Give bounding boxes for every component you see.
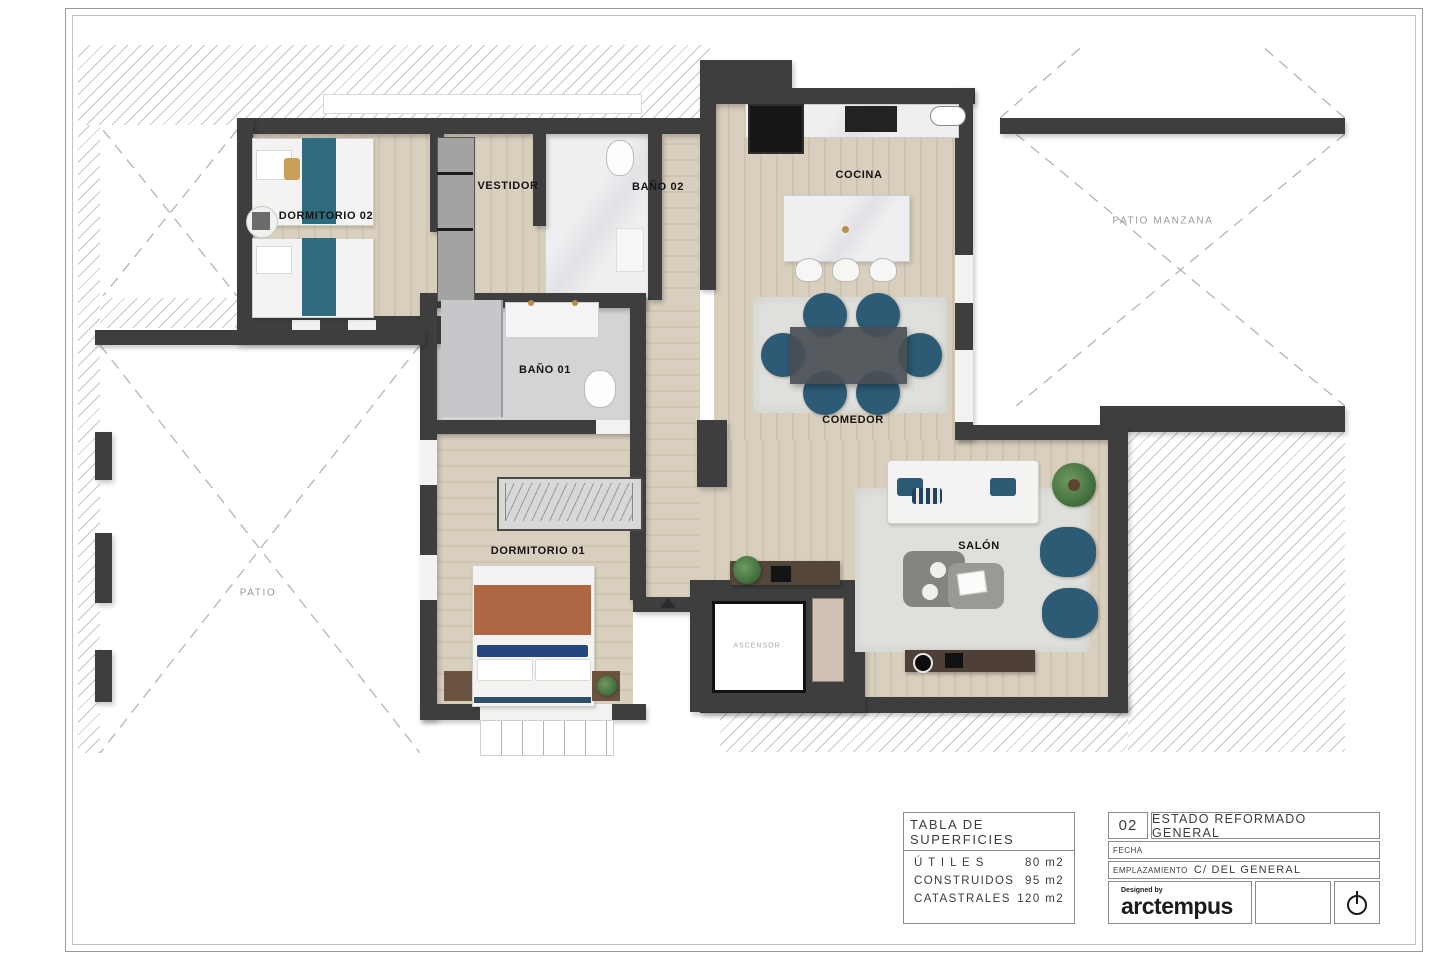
hall-console-frame	[770, 565, 792, 583]
wall-salon-top-right	[955, 425, 1115, 440]
island-faucet	[842, 226, 849, 233]
window-comedor-a	[955, 255, 973, 303]
hatch-bottom	[720, 708, 1130, 752]
bed-dorm02-bottom-pillow	[256, 246, 292, 274]
patio-manzana-x-lines	[1016, 134, 1345, 406]
sheet-number: 02	[1119, 817, 1138, 834]
room-label-ascensor: ASCENSOR	[733, 643, 780, 650]
surfaces-row-catastrales: CATASTRALES 120 m2	[904, 887, 1074, 905]
plant-salon-pot	[1068, 479, 1080, 491]
armchair-1	[1040, 527, 1096, 577]
island-stool-3	[869, 258, 897, 282]
entrance-arrow-icon	[660, 598, 676, 608]
wall-patio-top	[95, 330, 425, 345]
wall-stub-left-3	[95, 650, 112, 702]
room-label-cocina: COCINA	[836, 169, 883, 181]
wall-salon-right	[1108, 425, 1128, 712]
surfaces-row-construidos-value: 95 m2	[1025, 875, 1064, 887]
wall-kitchen-left	[700, 100, 716, 290]
island-stool-1	[795, 258, 823, 282]
kitchen-cooktop	[845, 106, 897, 132]
wall-midwing-left	[420, 293, 437, 720]
wall-kitchen-top	[790, 88, 975, 104]
bed-dorm01-pillow-right	[535, 659, 591, 681]
wall-kitchen-corner-block	[700, 60, 792, 104]
surfaces-row-utiles-label: Ú T I L E S	[914, 857, 985, 869]
closet-vestidor	[437, 137, 475, 302]
arctempus-logo: arctempus	[1121, 895, 1233, 918]
room-label-bano01: BAÑO 01	[519, 364, 571, 376]
patio-pocket-x-lines	[103, 130, 237, 296]
emplazamiento-label: EMPLAZAMIENTO	[1113, 866, 1188, 875]
room-label-patio-manzana: PATIO MANZANA	[1113, 216, 1214, 227]
room-label-patio: PATIO	[240, 588, 277, 599]
kitchen-oven-column	[748, 104, 804, 154]
wall-patio-manzana-top	[1000, 118, 1345, 134]
blank-cell	[1255, 881, 1331, 924]
plant-dorm01	[597, 676, 617, 696]
nightstand-dorm01-left	[444, 671, 472, 701]
hatch-right-block	[1128, 432, 1345, 752]
island-stool-2	[832, 258, 860, 282]
closet-shelf-line-1	[437, 172, 473, 175]
tv-console-speaker	[913, 653, 933, 673]
wall-top-left-wing	[237, 118, 710, 134]
patio-x-lines	[100, 345, 420, 753]
surfaces-table-title: TABLA DE SUPERFICIES	[904, 813, 1074, 851]
surfaces-row-utiles: Ú T I L E S 80 m2	[904, 851, 1074, 869]
wall-hall-pillar	[697, 420, 727, 487]
floor-corridor	[645, 298, 700, 598]
window-dorm01-left-a	[420, 440, 437, 485]
skylight-band	[323, 94, 642, 114]
surfaces-table: TABLA DE SUPERFICIES Ú T I L E S 80 m2 C…	[903, 812, 1075, 924]
window-dorm01-left-b	[420, 555, 437, 600]
sheet-number-cell: 02	[1108, 812, 1148, 839]
balcony-glazing	[480, 720, 614, 756]
wall-patio-manzana-bottom	[1100, 406, 1345, 432]
bed-dorm01-pillow-blue	[477, 645, 588, 657]
patio-manzana-upper-x-lines	[1000, 48, 1345, 118]
fecha-label: FECHA	[1113, 846, 1143, 855]
wall-stub-left-2	[95, 533, 112, 603]
vanity-faucet-1	[528, 300, 534, 306]
room-label-comedor: COMEDOR	[822, 414, 884, 426]
bathmat-bano02	[616, 228, 644, 272]
surfaces-row-catastrales-label: CATASTRALES	[914, 893, 1011, 905]
toilet-bano01	[584, 370, 616, 408]
vanity-bano01	[505, 302, 599, 338]
coffee-table-deco-2	[922, 584, 938, 600]
bed-dorm01-footboard	[474, 697, 591, 703]
door-bano01	[596, 420, 630, 434]
logo-cell: Designed by arctempus	[1108, 881, 1252, 924]
title-block: 02 ESTADO REFORMADO GENERAL FECHA EMPLAZ…	[1108, 812, 1380, 924]
bed-dorm02-top-cushion	[284, 158, 300, 180]
room-label-dormitorio02: DORMITORIO 02	[279, 210, 373, 222]
emplazamiento-cell: EMPLAZAMIENTO C/ DEL GENERAL	[1108, 861, 1380, 879]
surfaces-row-catastrales-value: 120 m2	[1017, 893, 1064, 905]
bed-dorm01-blanket	[474, 585, 591, 635]
vanity-tray	[252, 212, 270, 230]
surfaces-row-construidos: CONSTRUIDOS 95 m2	[904, 869, 1074, 887]
room-label-dormitorio01: DORMITORIO 01	[491, 545, 585, 557]
bed-dorm02-bottom-blanket	[302, 238, 336, 316]
sheet-title-cell: ESTADO REFORMADO GENERAL	[1151, 812, 1380, 839]
emplazamiento-value: C/ DEL GENERAL	[1194, 864, 1301, 876]
coffee-table-deco-1	[930, 562, 946, 578]
wall-stub-left-1	[95, 432, 112, 480]
wardrobe-dorm01-hangers	[505, 483, 633, 521]
toilet-bano02	[606, 140, 634, 176]
room-label-vestidor: VESTIDOR	[477, 180, 538, 192]
surfaces-row-utiles-value: 80 m2	[1025, 857, 1064, 869]
room-label-salon: SALÓN	[958, 540, 1000, 552]
fecha-cell: FECHA	[1108, 841, 1380, 859]
hatch-left-block	[100, 298, 238, 328]
surfaces-row-construidos-label: CONSTRUIDOS	[914, 875, 1014, 887]
tv-console-book	[945, 653, 963, 668]
bed-dorm01-pillow-left	[477, 659, 533, 681]
closet-shelf-line-2	[437, 228, 473, 231]
vanity-faucet-2	[572, 300, 578, 306]
room-label-bano02: BAÑO 02	[632, 181, 684, 193]
dining-table	[790, 327, 907, 384]
shower-bano01	[441, 300, 503, 417]
entry-door	[812, 598, 844, 682]
wall-bano01-right	[630, 293, 646, 435]
coffee-table-book	[957, 570, 988, 596]
sofa-cushion-striped	[912, 488, 942, 504]
armchair-2	[1042, 588, 1098, 638]
window-comedor-b	[955, 350, 973, 422]
sheet-title: ESTADO REFORMADO GENERAL	[1152, 812, 1379, 840]
wall-bano02-right	[648, 134, 662, 300]
kitchen-ceiling-light	[930, 106, 966, 126]
power-cell	[1334, 881, 1380, 924]
floor-plan-sheet: DORMITORIO 02 VESTIDOR BAÑO 02 COCINA PA…	[0, 0, 1445, 963]
sofa-cushion-right	[990, 478, 1016, 496]
power-icon	[1344, 889, 1370, 917]
hall-console-plant	[733, 556, 761, 584]
